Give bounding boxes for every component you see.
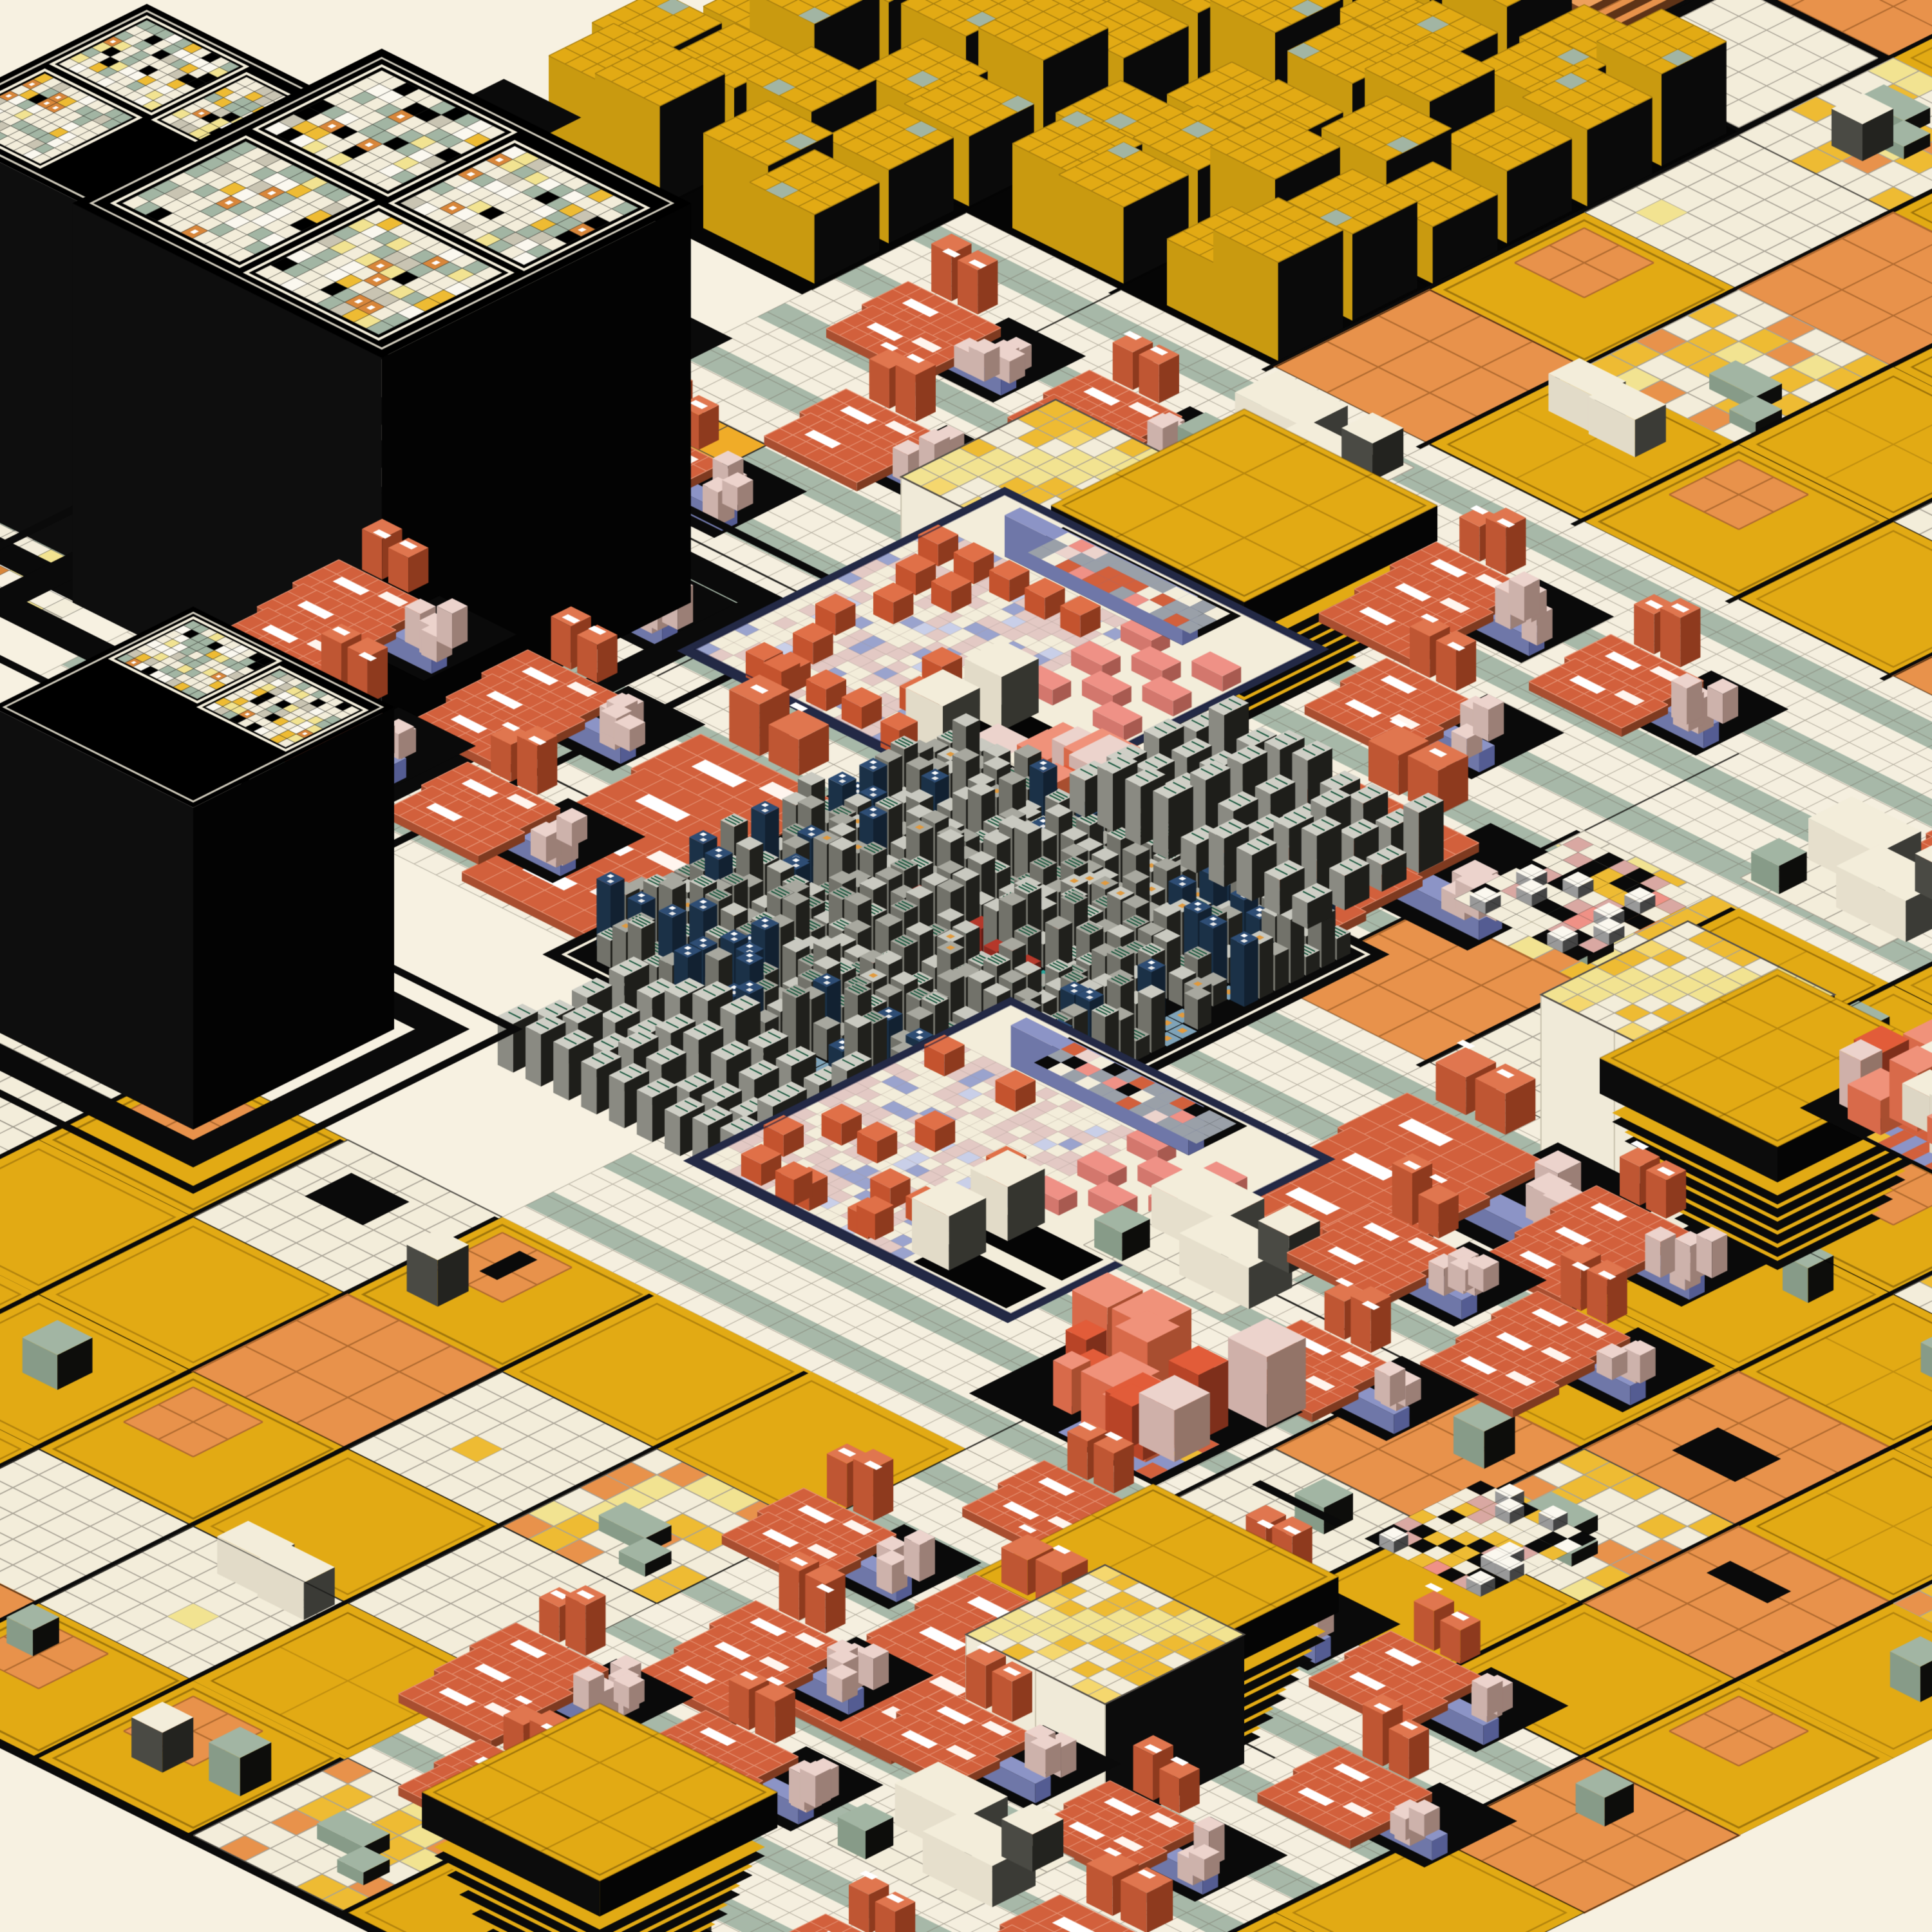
artwork-wrapper [0,0,1932,1932]
isometric-chip-city-canvas [0,0,1932,1932]
